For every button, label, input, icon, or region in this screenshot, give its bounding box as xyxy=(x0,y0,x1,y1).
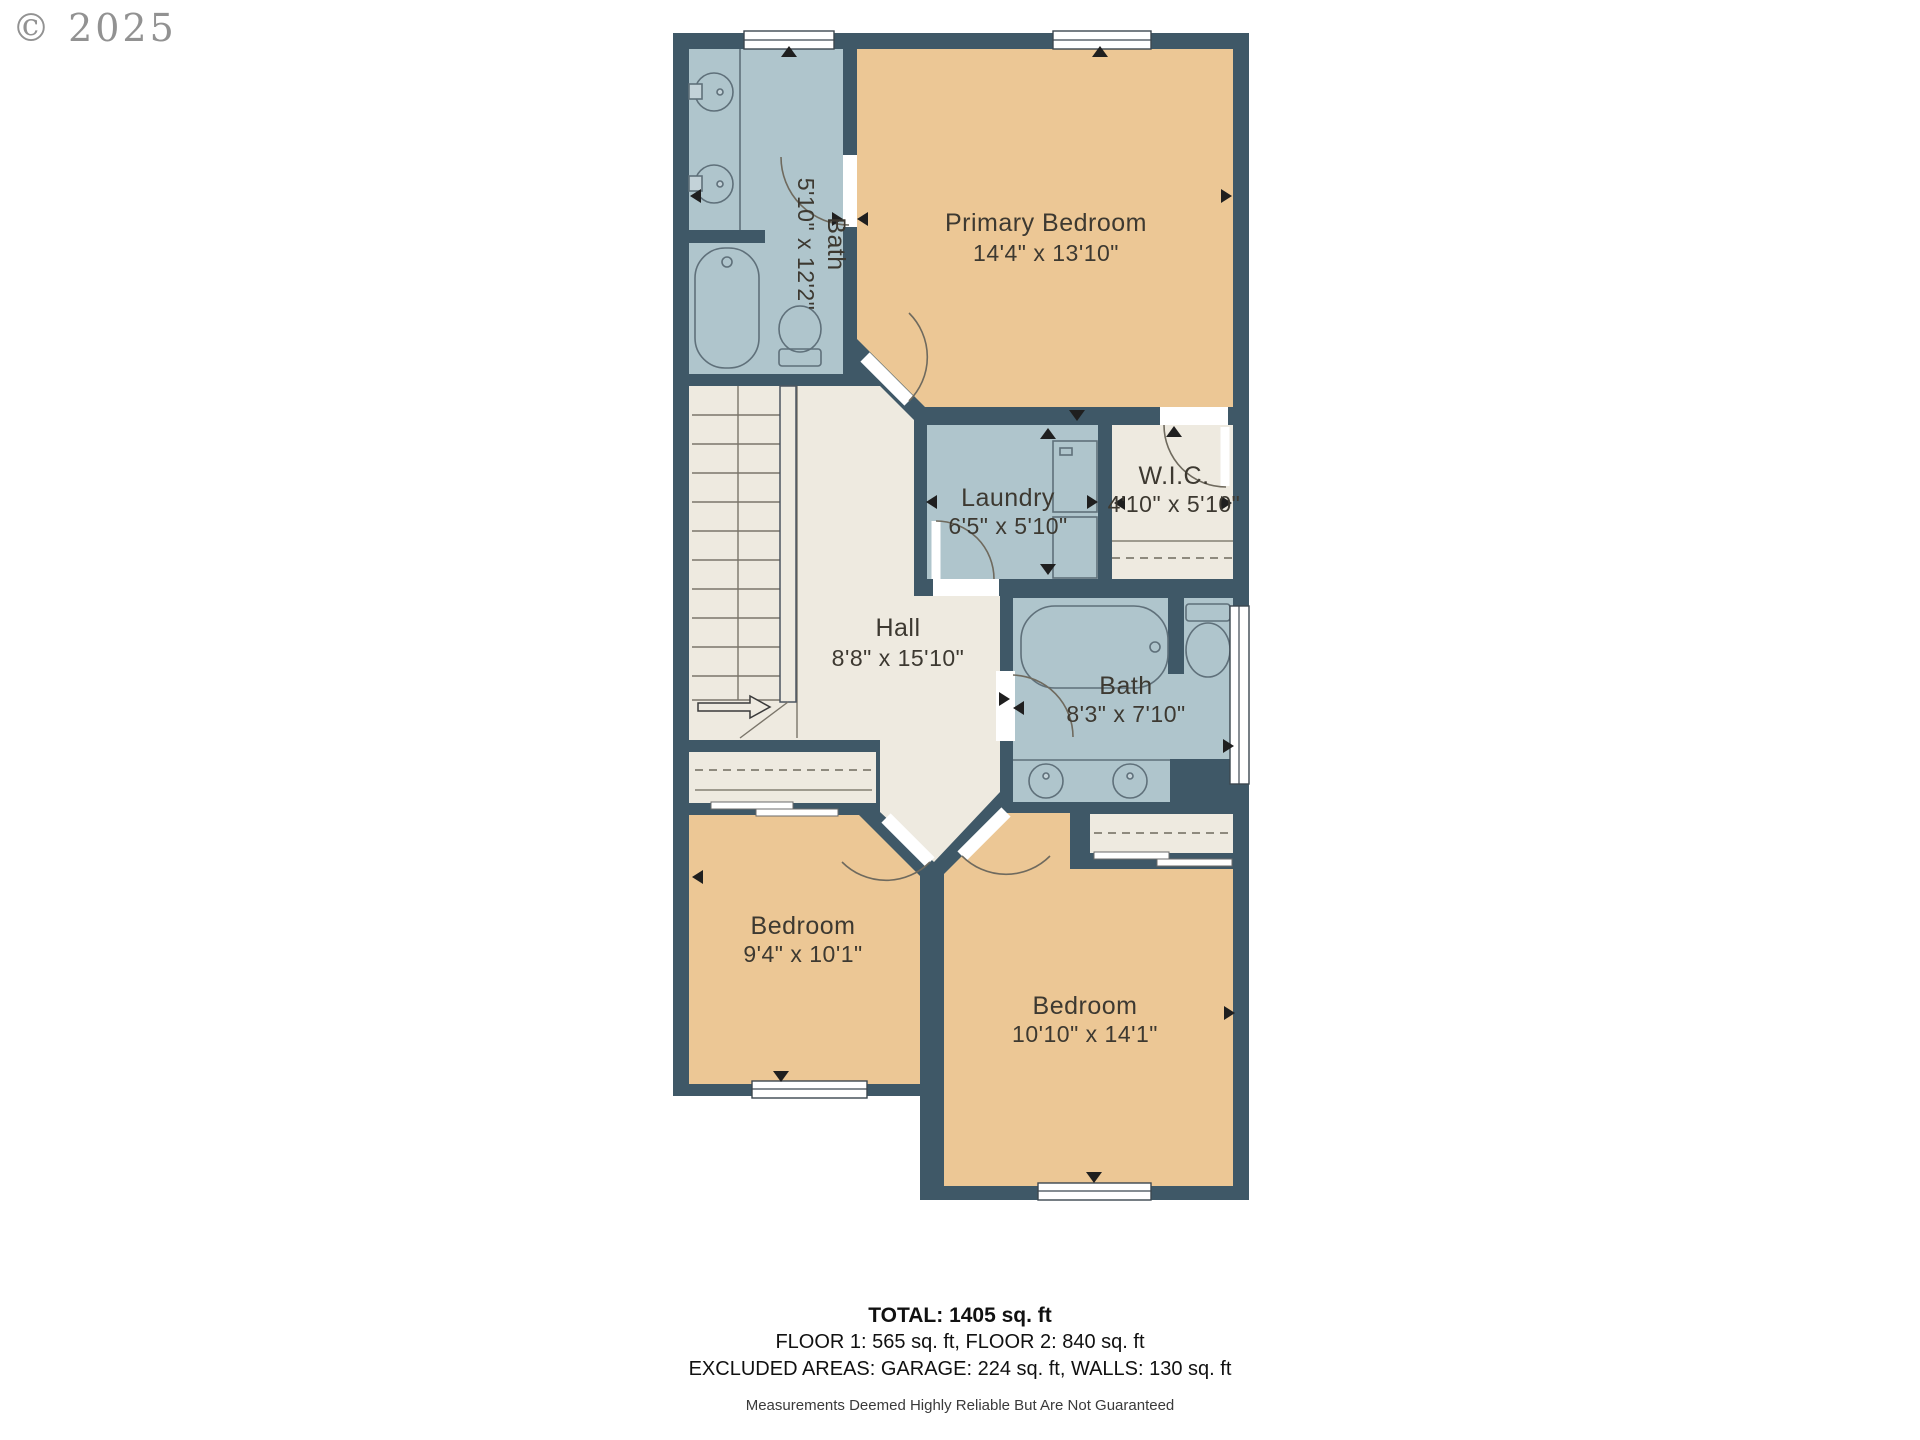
area-summary: TOTAL: 1405 sq. ft FLOOR 1: 565 sq. ft, … xyxy=(0,1302,1920,1414)
stair-railing xyxy=(780,386,796,702)
window xyxy=(1053,31,1151,49)
excluded-areas: EXCLUDED AREAS: GARAGE: 224 sq. ft, WALL… xyxy=(0,1356,1920,1383)
wall-chunk-bath-corner xyxy=(1170,759,1233,814)
floor-plan: Bath 5'10" x 12'2" Primary Bedroom 14'4"… xyxy=(0,0,1920,1440)
room-label: Bath xyxy=(822,217,850,270)
room-label: W.I.C. xyxy=(1138,462,1209,490)
room-label: Hall xyxy=(875,614,920,642)
room-dims-label: 6'5" x 5'10" xyxy=(948,513,1067,539)
label-bedroom2: Bedroom 10'10" x 14'1" xyxy=(1012,992,1158,1047)
sliding-door xyxy=(1094,852,1169,859)
floor-areas: FLOOR 1: 565 sq. ft, FLOOR 2: 840 sq. ft xyxy=(0,1329,1920,1356)
room-dims-label: 5'10" x 12'2" xyxy=(793,178,819,311)
window xyxy=(752,1081,867,1098)
copyright-watermark: © 2025 xyxy=(12,6,177,50)
total-area: TOTAL: 1405 sq. ft xyxy=(0,1302,1920,1329)
door-opening xyxy=(843,155,857,227)
room-label: Laundry xyxy=(961,484,1055,512)
room-dims-label: 14'4" x 13'10" xyxy=(973,240,1119,266)
door-opening xyxy=(933,579,999,596)
room-label: Primary Bedroom xyxy=(945,209,1147,237)
room-dims-label: 8'3" x 7'10" xyxy=(1066,701,1185,727)
sliding-door xyxy=(711,802,793,809)
wall-stub-bath-middle xyxy=(1168,598,1184,674)
wall-halfwall-bath-upper xyxy=(689,230,765,243)
floorplan-page: © 2025 xyxy=(0,0,1920,1440)
sliding-door xyxy=(756,809,838,816)
room-dims-label: 4'10" x 5'10" xyxy=(1108,491,1241,517)
window xyxy=(1038,1183,1151,1200)
room-label: Bedroom xyxy=(751,912,856,940)
disclaimer: Measurements Deemed Highly Reliable But … xyxy=(0,1397,1920,1414)
room-dims-label: 10'10" x 14'1" xyxy=(1012,1021,1158,1047)
label-bedroom1: Bedroom 9'4" x 10'1" xyxy=(743,912,862,967)
room-dims-label: 9'4" x 10'1" xyxy=(743,941,862,967)
sliding-door xyxy=(1157,859,1232,866)
door-opening xyxy=(996,671,1015,741)
room-label: Bath xyxy=(1099,672,1152,700)
closet-bedroom1 xyxy=(689,752,876,803)
room-dims-label: 8'8" x 15'10" xyxy=(832,645,965,671)
room-label: Bedroom xyxy=(1033,992,1138,1020)
door-opening xyxy=(1160,407,1228,425)
window xyxy=(1230,606,1249,784)
label-laundry: Laundry 6'5" x 5'10" xyxy=(948,484,1067,539)
